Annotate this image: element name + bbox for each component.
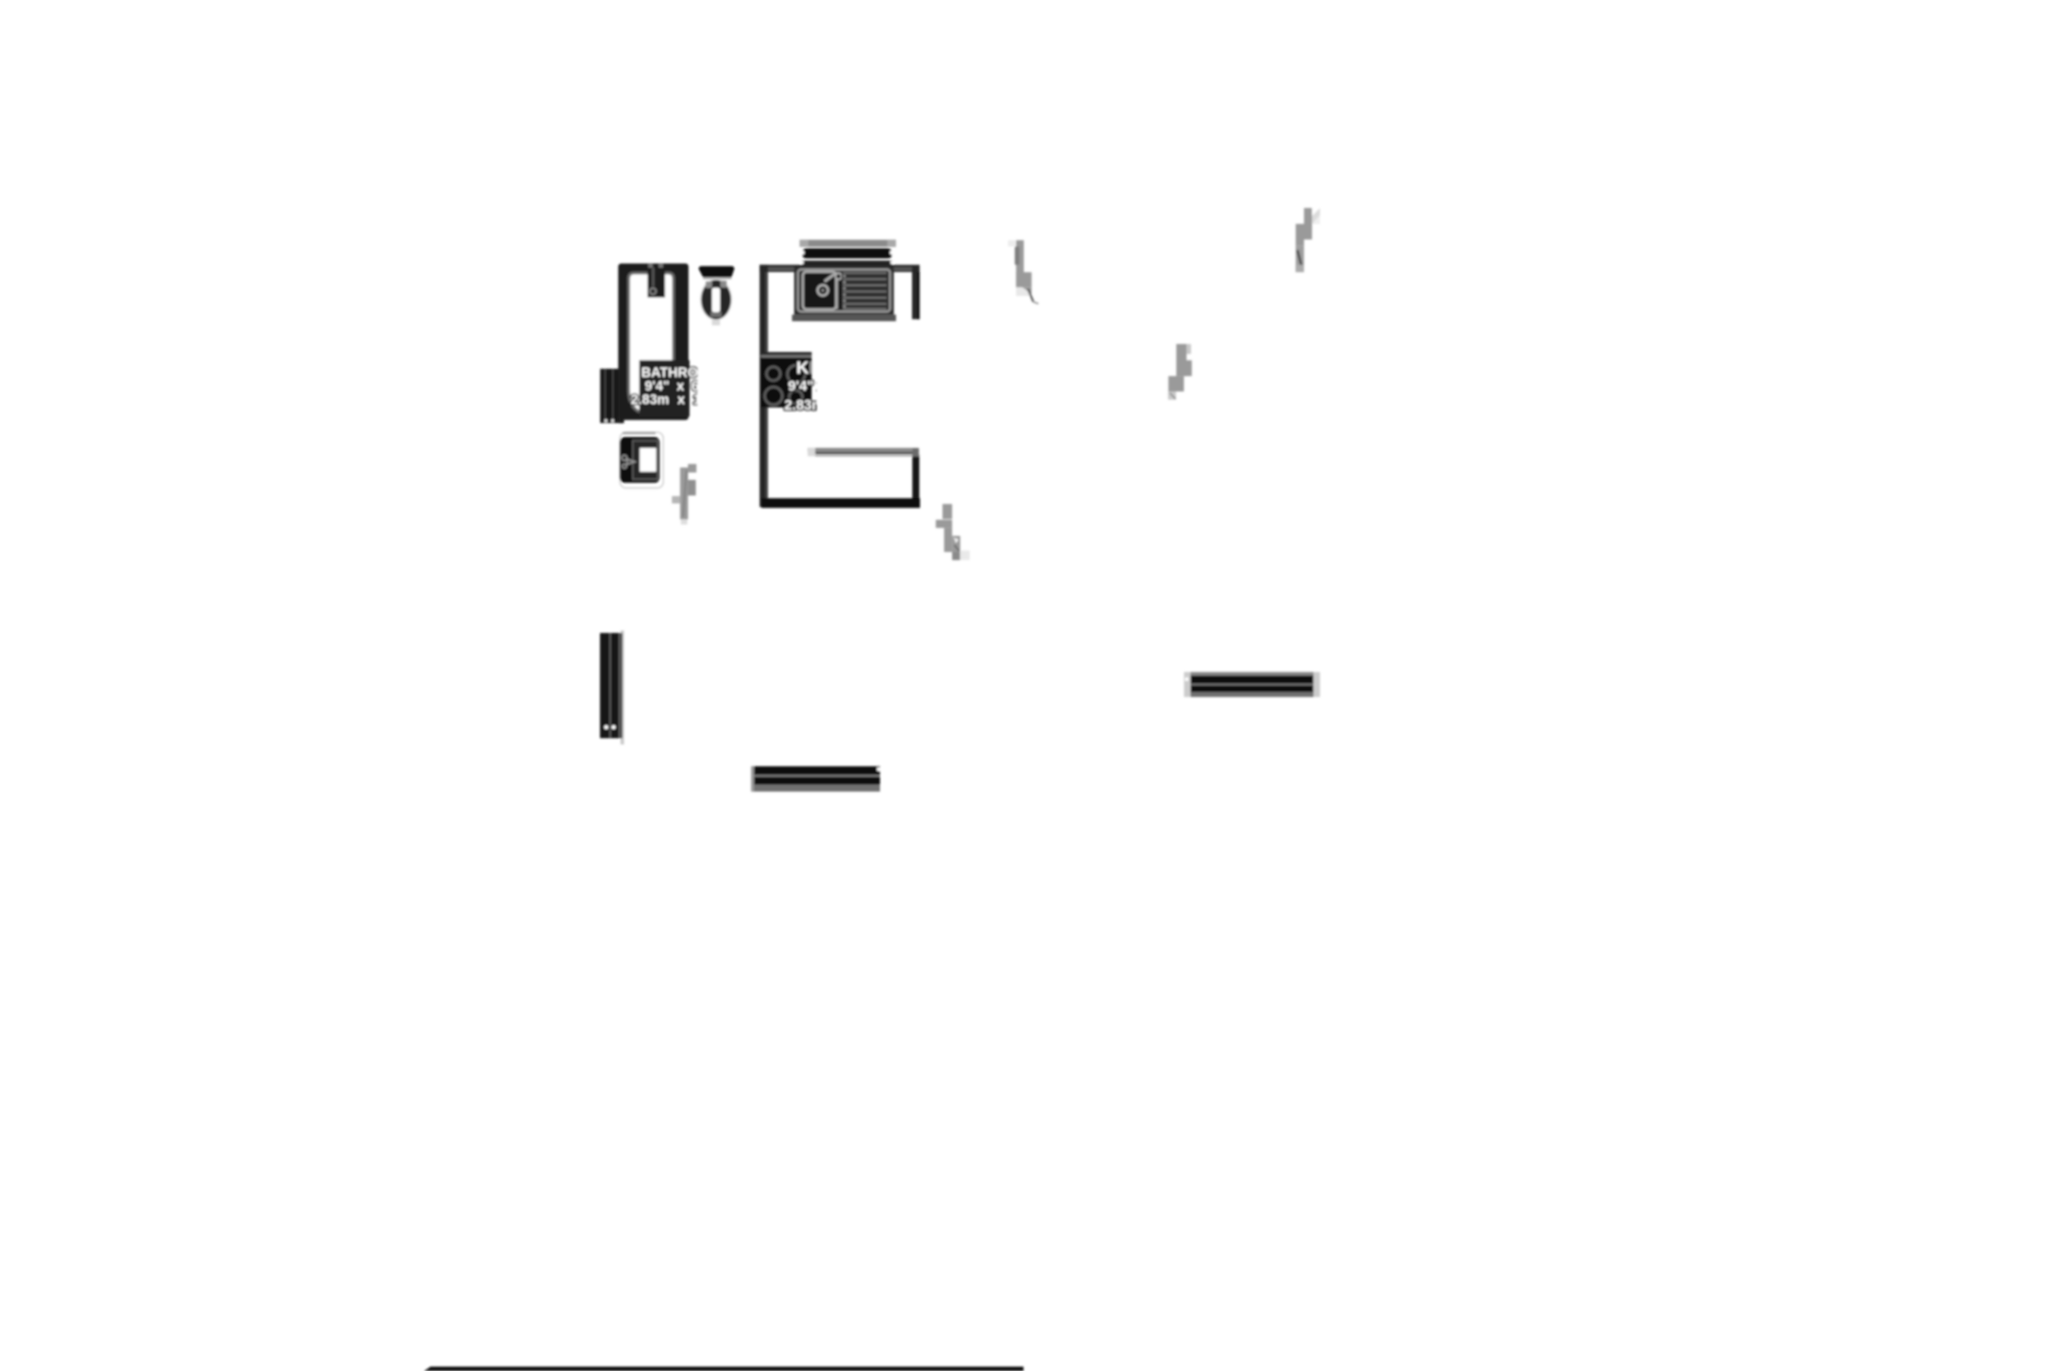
svg-text:9'4" x 9'2": 9'4" x 9'2" (788, 377, 855, 393)
svg-text:2.83m x 1.86m: 2.83m x 1.86m (631, 392, 732, 407)
svg-text:KITCHEN: KITCHEN (796, 357, 874, 377)
svg-text:2.83m x 2.79m: 2.83m x 2.79m (784, 397, 879, 413)
